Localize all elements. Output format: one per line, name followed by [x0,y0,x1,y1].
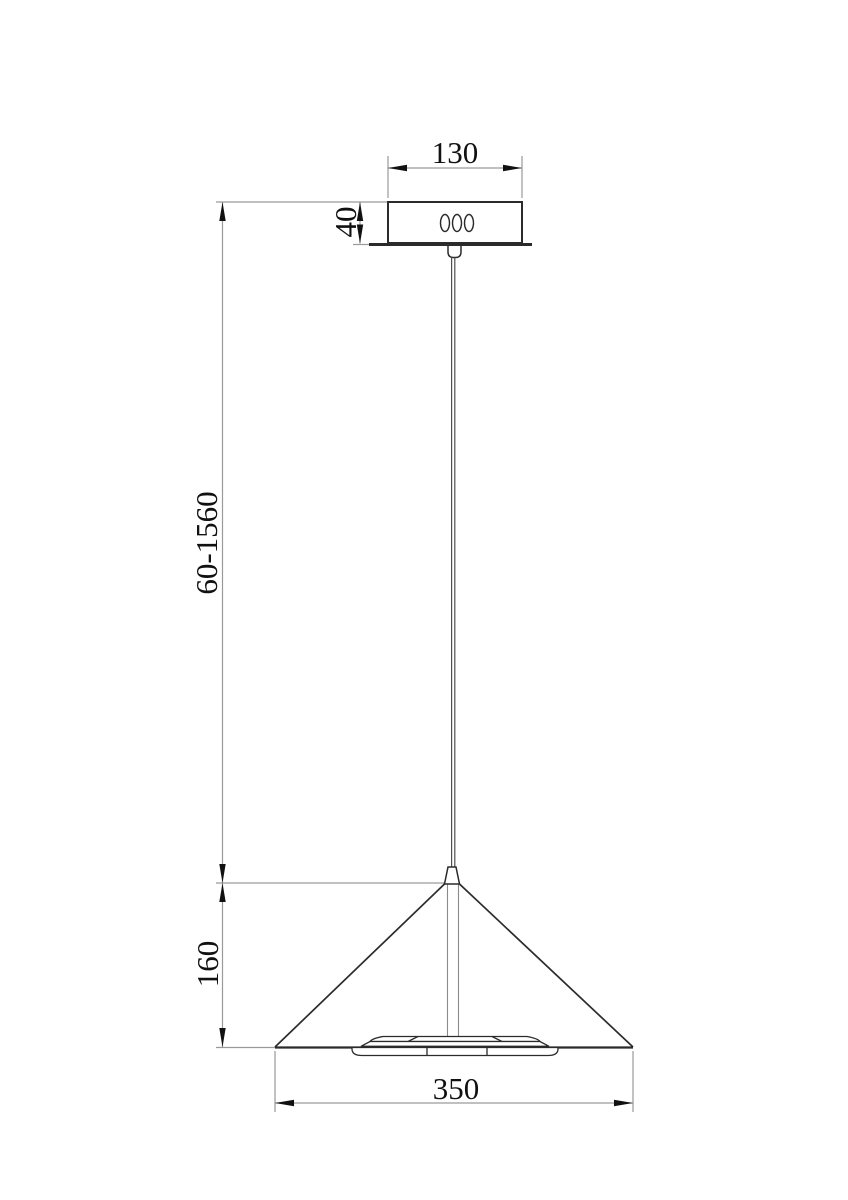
pendant-lamp-dimension-drawing: 130 40 60-1560 160 350 [0,0,848,1200]
diffuser-bottom-ring [352,1048,558,1056]
canopy [369,202,532,258]
dimension-arrowheads [219,165,633,1106]
dim-label-canopy-height: 40 [328,207,363,238]
dim-label-canopy-width: 130 [432,135,479,170]
arrow-down-icon [219,864,225,883]
cone-apex-fitting [445,867,460,884]
arrow-right-icon [614,1100,633,1106]
diffuser-top-tier [370,1037,540,1042]
dim-label-suspension-length: 60-1560 [189,491,224,594]
arrow-left-icon [275,1100,294,1106]
shade-cone [275,884,633,1048]
cone-slope-right [460,884,634,1047]
arrow-down-icon [219,1028,225,1047]
diffuser-mid-band [361,1042,549,1047]
cone-slope-left [275,884,445,1047]
suspension-cable [452,258,455,868]
dim-label-shade-height: 160 [190,941,225,988]
canopy-body [388,202,522,243]
center-rod [448,884,459,1037]
technical-drawing-page: 130 40 60-1560 160 350 [0,0,848,1200]
arrow-left-icon [388,165,407,171]
arrow-right-icon [503,165,522,171]
arrow-up-icon [219,202,225,221]
diffuser [352,1037,558,1056]
arrow-up-icon [219,883,225,902]
cord-grip [448,246,461,258]
dim-label-shade-diameter: 350 [433,1071,480,1106]
dimension-lines [216,156,633,1112]
